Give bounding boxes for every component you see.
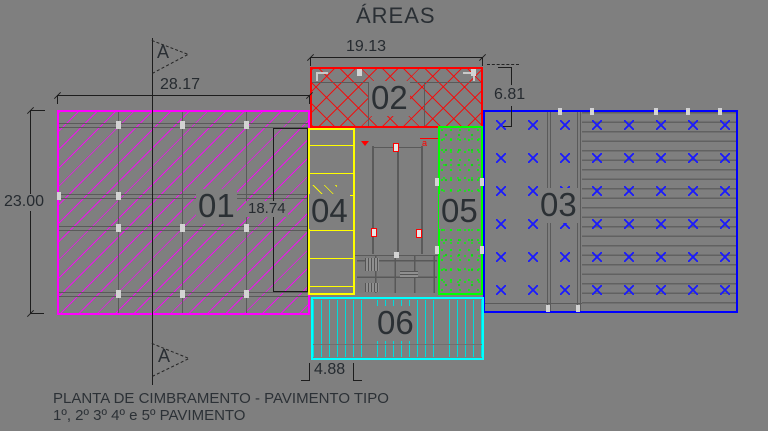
shoring-x-mark — [560, 120, 570, 130]
dim-area02-height: 6.81 — [492, 87, 527, 104]
shoring-x-mark — [496, 219, 506, 229]
door-marker — [393, 143, 399, 152]
shoring-x-mark — [688, 285, 698, 295]
area-01-label: 01 — [196, 189, 237, 224]
shoring-x-mark — [720, 219, 730, 229]
formwork-tick — [180, 121, 185, 129]
formwork-tick — [546, 305, 550, 312]
shoring-x-mark — [592, 153, 602, 163]
shoring-x-mark — [528, 153, 538, 163]
shoring-x-mark — [656, 120, 666, 130]
shoring-x-mark — [624, 186, 634, 196]
slab-line — [182, 112, 183, 313]
stair-treads — [400, 271, 418, 278]
slab-line — [118, 112, 119, 313]
dim-line — [30, 110, 31, 314]
dim-hook — [301, 380, 309, 381]
hatch-gap — [437, 300, 444, 357]
area-05-label: 05 — [439, 194, 480, 229]
dim-extension — [487, 64, 519, 65]
scaffold-rung — [310, 286, 353, 287]
shoring-x-mark — [528, 285, 538, 295]
slab-line — [424, 82, 425, 126]
shoring-x-mark — [624, 285, 634, 295]
shoring-x-mark — [720, 186, 730, 196]
slab-line — [313, 344, 482, 345]
shoring-x-mark — [592, 219, 602, 229]
dim-core-height: 18.74 — [246, 201, 288, 217]
dim-line — [57, 95, 310, 96]
section-label-bottom: A — [158, 346, 170, 367]
formwork-tick — [590, 108, 594, 115]
formwork-tick — [558, 108, 562, 115]
area-03-label: 03 — [538, 188, 579, 223]
dim-hook — [30, 313, 44, 314]
dim-line — [511, 67, 512, 85]
door-marker — [416, 229, 422, 238]
formwork-tick — [116, 121, 121, 129]
level-marker-icon — [361, 141, 369, 146]
stair-treads — [365, 258, 379, 271]
stair-letter-marker: a — [420, 138, 438, 147]
dim-hook — [503, 126, 512, 127]
drawing-title: ÁREAS — [356, 3, 436, 29]
shoring-x-mark — [656, 186, 666, 196]
shoring-x-mark — [720, 285, 730, 295]
shoring-x-mark — [560, 252, 570, 262]
formwork-tick — [654, 108, 658, 115]
shoring-x-mark — [496, 153, 506, 163]
formwork-tick — [244, 224, 249, 232]
stair-treads — [365, 283, 379, 292]
shoring-x-mark — [720, 252, 730, 262]
door-marker — [371, 228, 377, 237]
formwork-tick — [480, 246, 484, 254]
formwork-tick — [480, 178, 484, 186]
formwork-tick — [116, 224, 121, 232]
cad-drawing-canvas: ÁREAS a — [0, 0, 768, 431]
dim-hook — [30, 110, 45, 111]
shoring-x-mark — [528, 252, 538, 262]
dim-area01-height: 23.00 — [2, 194, 46, 211]
scaffold-rung — [310, 173, 353, 174]
scaffold-rung — [310, 145, 353, 146]
shoring-x-mark — [624, 120, 634, 130]
area-04-label: 04 — [309, 194, 350, 229]
shoring-x-mark — [688, 219, 698, 229]
formwork-tick — [116, 290, 121, 298]
area-02-label: 02 — [369, 81, 410, 116]
section-line — [152, 38, 153, 385]
area-06-label: 06 — [375, 306, 416, 341]
formwork-tick — [180, 290, 185, 298]
dim-line — [310, 57, 483, 58]
shoring-x-mark — [496, 120, 506, 130]
shoring-x-mark — [688, 252, 698, 262]
shoring-x-mark — [528, 186, 538, 196]
slab-line — [59, 194, 308, 199]
plan-note-line2: 1º, 2º 3º 4º e 5º PAVIMENTO — [53, 407, 245, 424]
shoring-x-mark — [656, 153, 666, 163]
shoring-x-mark — [720, 120, 730, 130]
scaffold-rung — [310, 230, 353, 231]
dim-hook — [498, 67, 512, 68]
formwork-tick — [357, 69, 362, 76]
formwork-tick — [394, 252, 399, 258]
formwork-tick — [576, 305, 580, 312]
plan-note-line1: PLANTA DE CIMBRAMENTO - PAVIMENTO TIPO — [53, 390, 389, 407]
shoring-x-mark — [720, 153, 730, 163]
shoring-x-mark — [528, 120, 538, 130]
dim-hook — [354, 380, 362, 381]
shoring-x-mark — [592, 252, 602, 262]
shoring-x-mark — [496, 285, 506, 295]
shoring-x-mark — [496, 186, 506, 196]
shoring-x-marks-layer — [485, 112, 736, 311]
shoring-x-mark — [688, 186, 698, 196]
dim-hook — [309, 363, 310, 381]
shoring-x-mark — [688, 153, 698, 163]
formwork-tick — [718, 108, 722, 115]
shoring-x-mark — [624, 153, 634, 163]
core-wall — [397, 146, 399, 256]
shoring-x-mark — [656, 252, 666, 262]
shoring-x-mark — [592, 186, 602, 196]
dim-line — [511, 106, 512, 127]
shoring-x-mark — [560, 285, 570, 295]
dim-hook — [353, 363, 354, 381]
formwork-tick — [471, 69, 476, 76]
scaffold-rung — [310, 258, 353, 259]
formwork-tick — [686, 108, 690, 115]
section-label-top: A — [157, 42, 169, 63]
dim-area01-width: 28.17 — [158, 77, 202, 94]
dim-area02-width: 19.13 — [344, 39, 388, 56]
core-wall — [372, 146, 374, 254]
shoring-x-mark — [528, 219, 538, 229]
formwork-tick — [244, 121, 249, 129]
formwork-tick — [244, 290, 249, 298]
shoring-x-mark — [592, 120, 602, 130]
area-03-shape — [483, 110, 738, 313]
formwork-tick — [116, 192, 121, 200]
formwork-tick — [180, 224, 185, 232]
corner-bracket — [316, 72, 328, 81]
shoring-x-mark — [656, 285, 666, 295]
shoring-x-mark — [688, 120, 698, 130]
dim-area06-left-width: 4.88 — [312, 362, 347, 379]
shoring-x-mark — [656, 219, 666, 229]
formwork-tick — [435, 178, 439, 186]
shoring-x-mark — [624, 219, 634, 229]
shoring-x-mark — [624, 252, 634, 262]
shoring-x-mark — [592, 285, 602, 295]
formwork-tick — [435, 246, 439, 254]
shoring-x-mark — [560, 153, 570, 163]
formwork-tick — [57, 192, 61, 200]
shoring-x-mark — [496, 252, 506, 262]
